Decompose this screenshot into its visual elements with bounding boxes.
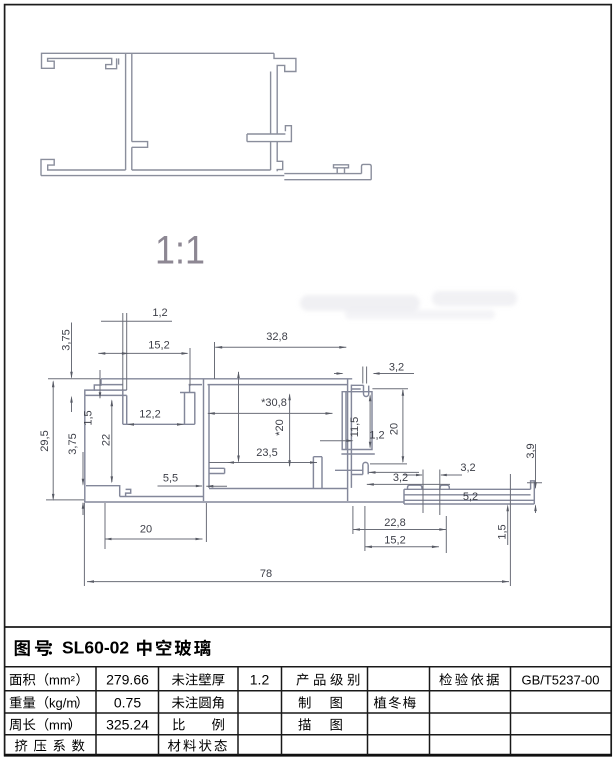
svg-text:3,2: 3,2 [393,472,408,484]
svg-text:32,8: 32,8 [266,331,287,343]
svg-text:3,75: 3,75 [61,329,73,350]
svg-text:1,5: 1,5 [83,410,95,425]
svg-text:22,8: 22,8 [384,517,405,529]
svg-text:15,2: 15,2 [148,340,169,352]
svg-text:20: 20 [140,524,152,536]
svg-text:325.24: 325.24 [106,717,149,733]
svg-text:GB/T5237-00: GB/T5237-00 [521,673,599,688]
svg-text:1,2: 1,2 [369,430,384,442]
svg-text:12,2: 12,2 [139,409,160,421]
svg-text:1,2: 1,2 [152,307,167,319]
svg-text:1.2: 1.2 [250,672,270,688]
svg-text:kg/m: kg/m [49,696,77,711]
svg-text:3,2: 3,2 [460,462,475,474]
svg-text:23,5: 23,5 [256,447,277,459]
svg-text:78: 78 [260,568,272,580]
svg-text:11,5: 11,5 [349,417,361,438]
svg-text:*30,8: *30,8 [261,397,287,409]
svg-text:*20: *20 [274,419,286,436]
svg-text:15,2: 15,2 [384,535,405,547]
svg-text:1,5: 1,5 [497,524,509,539]
svg-text:mm: mm [49,718,71,733]
svg-text:3,75: 3,75 [67,433,79,454]
svg-text:3,2: 3,2 [389,361,404,373]
svg-text:1:1: 1:1 [155,229,205,273]
svg-text:5,2: 5,2 [463,491,478,503]
svg-text:279.66: 279.66 [106,672,149,688]
svg-text:3,9: 3,9 [525,443,537,458]
svg-text:SL60-02: SL60-02 [62,638,129,658]
svg-text:5,5: 5,5 [163,473,178,485]
svg-text:29,5: 29,5 [39,430,51,451]
svg-text:20: 20 [389,423,401,435]
svg-text:mm²: mm² [49,673,76,688]
svg-text:22: 22 [101,434,113,446]
svg-text:0.75: 0.75 [114,695,141,711]
